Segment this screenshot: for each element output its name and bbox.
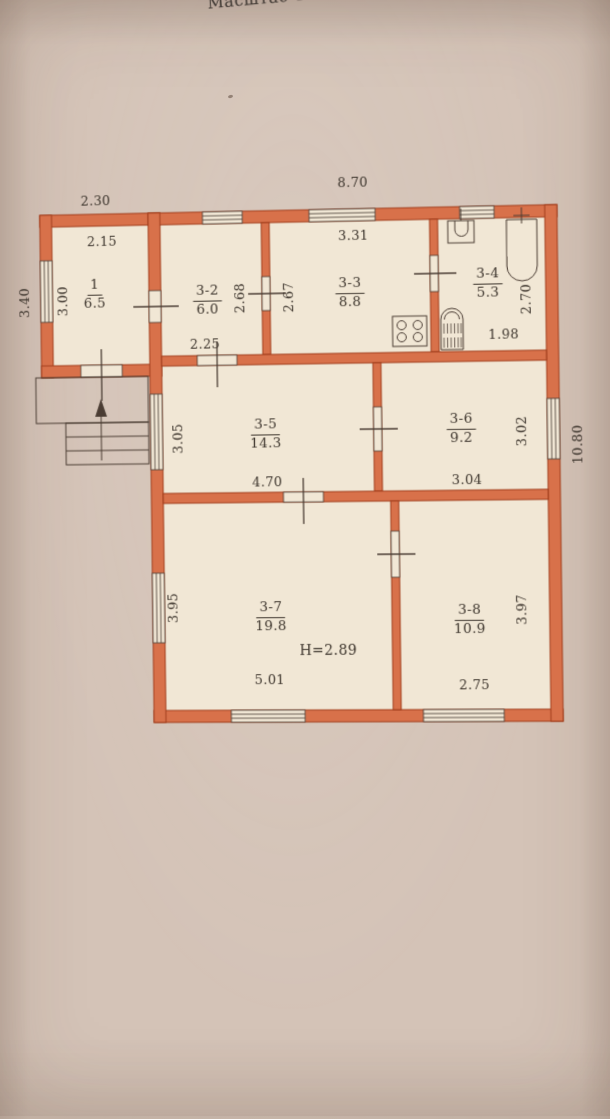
room-area: 5.3	[476, 285, 499, 301]
direction-arrow-icon	[95, 399, 108, 461]
dim-room3-5-height: 3.05	[171, 423, 186, 454]
dim-room3-7-width: 5.01	[254, 673, 285, 688]
dim-main-width: 8.70	[337, 175, 368, 191]
dim-room3-5-width: 4.70	[252, 475, 283, 490]
room-number: 3-2	[193, 283, 222, 301]
room-label-3-4: 3-4 5.3	[473, 266, 503, 301]
dim-room3-2-height: 2.68	[233, 283, 248, 314]
window	[309, 208, 375, 221]
dim-room3-3-width: 3.31	[338, 228, 369, 244]
dim-main-height: 10.80	[570, 425, 586, 465]
dim-room3-3-height: 2.67	[281, 282, 296, 313]
window	[150, 394, 163, 470]
dim-room3-6-width: 3.04	[451, 472, 482, 487]
ceiling-height-note: H=2.89	[299, 643, 357, 659]
window	[40, 261, 53, 323]
room-area: 6.0	[196, 302, 219, 318]
room-area: 8.8	[339, 294, 362, 310]
dim-room3-8-width: 2.75	[459, 678, 490, 693]
room-number: 3-7	[256, 600, 285, 618]
window	[547, 398, 560, 459]
dim-room3-7-height: 3.95	[166, 593, 181, 624]
dim-room3-4-height: 2.70	[519, 283, 535, 314]
room-number: 1	[87, 278, 102, 296]
window	[423, 709, 504, 721]
dim-annex-width: 2.30	[80, 194, 110, 210]
floor-plan-drawing	[0, 0, 610, 790]
room-number: 3-6	[446, 412, 475, 430]
room-number: 3-8	[455, 603, 484, 621]
entry-stairs-icon	[36, 376, 149, 465]
dim-room3-8-height: 3.97	[514, 594, 530, 625]
room-number: 3-5	[251, 417, 280, 435]
room-label-3-2: 3-2 6.0	[193, 283, 222, 317]
dim-room1-width: 2.15	[87, 234, 117, 249]
dim-room3-4-width: 1.98	[488, 327, 519, 343]
dim-annex-height: 3.40	[18, 288, 33, 319]
window	[460, 206, 495, 219]
window	[231, 710, 305, 722]
room-area: 10.9	[454, 621, 486, 637]
room-label-3-8: 3-8 10.9	[454, 603, 486, 637]
room-label-1: 1 6.5	[83, 278, 106, 312]
room-label-3-5: 3-5 14.3	[250, 417, 282, 451]
floor-plan: Масштаб 1:100	[0, 0, 610, 1119]
room-area: 6.5	[84, 296, 107, 312]
room-label-3-7: 3-7 19.8	[255, 600, 287, 634]
room-area: 19.8	[255, 619, 287, 635]
room-number: 3-4	[473, 266, 503, 284]
room-area: 14.3	[250, 436, 282, 452]
room-label-3-6: 3-6 9.2	[446, 412, 476, 447]
dim-room3-2-width: 2.25	[190, 337, 220, 352]
room-area: 9.2	[450, 430, 473, 446]
window	[202, 211, 242, 224]
room-label-3-3: 3-3 8.8	[335, 276, 364, 311]
window	[152, 573, 165, 643]
floor-plan-photo: { "photo": { "scale_title": "Масштаб 1:1…	[0, 0, 610, 1116]
dim-room3-6-height: 3.02	[514, 416, 530, 447]
dim-room1-height: 3.00	[56, 286, 71, 317]
room-number: 3-3	[335, 276, 364, 294]
